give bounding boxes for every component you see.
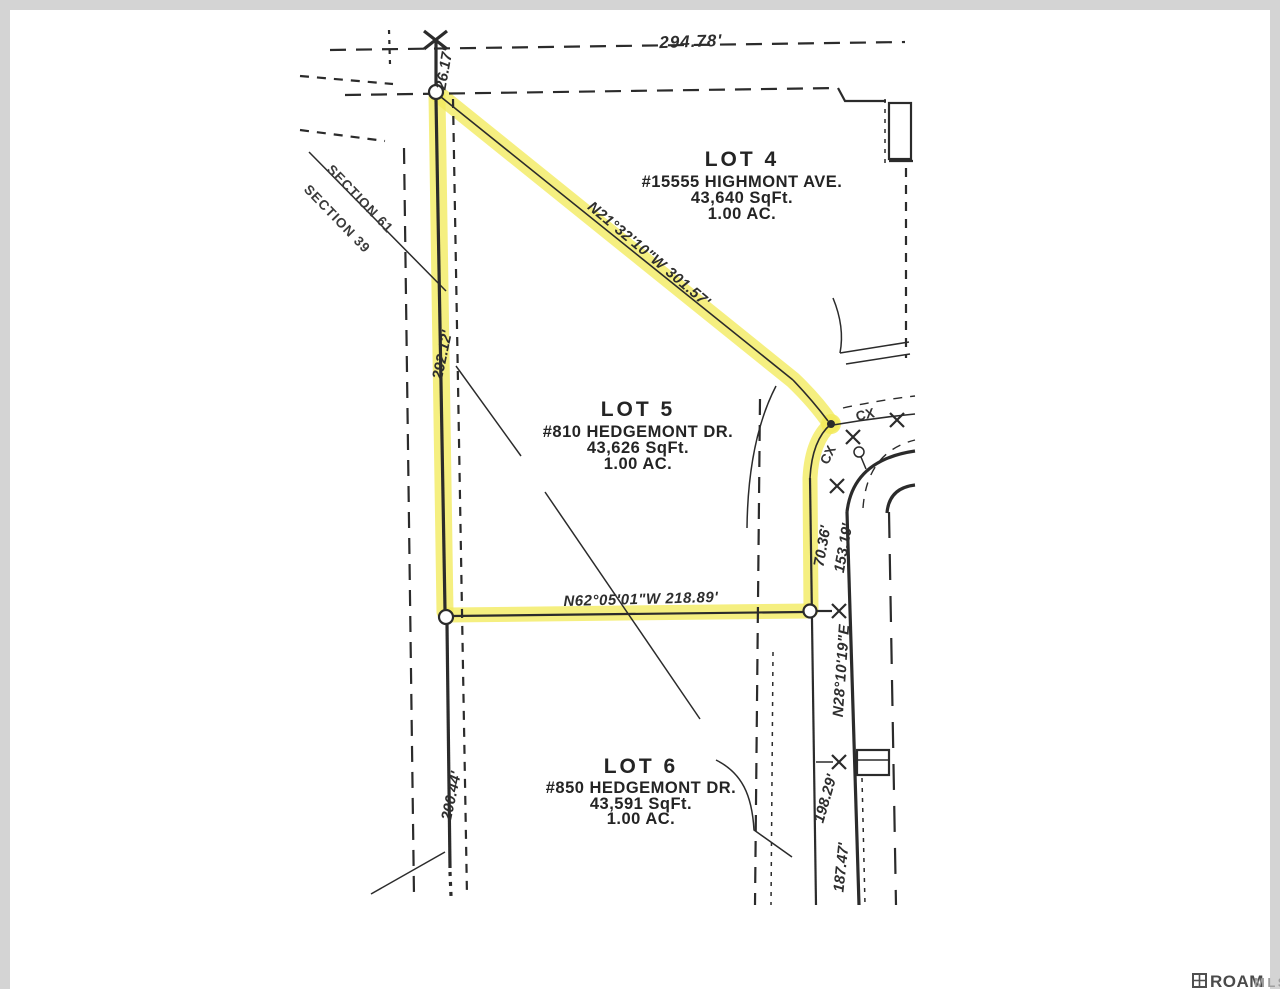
monument-circle-se	[804, 605, 817, 618]
lot6-acres: 1.00 AC.	[607, 810, 676, 828]
lot5-name: LOT 5	[601, 398, 676, 421]
lot4-acres: 1.00 AC.	[708, 205, 777, 223]
dim-top-line: 294.78'	[658, 31, 723, 52]
watermark-suffix: MLS	[1254, 975, 1280, 989]
lot6-name: LOT 6	[604, 755, 679, 778]
mls-watermark: ROAM MLS	[1193, 972, 1280, 989]
lot5-acres: 1.00 AC.	[604, 455, 673, 473]
lot4-name: LOT 4	[705, 148, 780, 171]
paper-page	[10, 10, 1270, 989]
west-line-lower-dashes	[450, 872, 451, 896]
monument-circle-sw	[439, 610, 453, 624]
plat-survey-drawing: 294.78' 26.17' 292.12' 200.44' N21°32'10…	[0, 0, 1280, 989]
